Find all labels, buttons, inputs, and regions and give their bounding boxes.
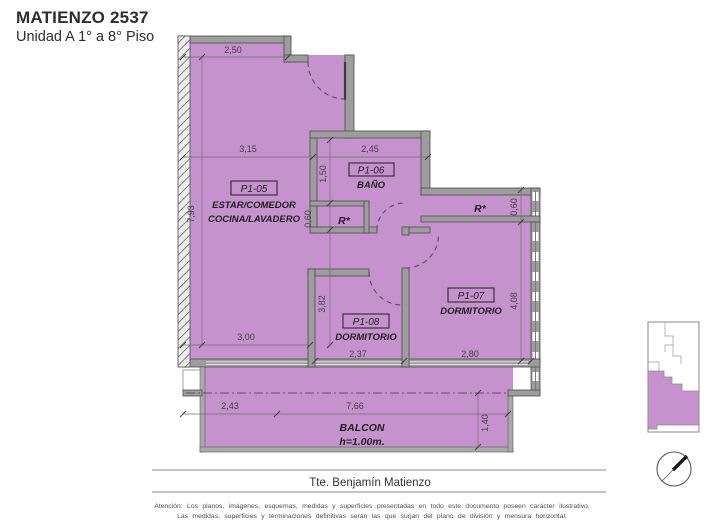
dim-bed1-closet-depth: 0,60 xyxy=(509,198,519,216)
wall-bath-top xyxy=(310,131,430,138)
bed2-name: DORMITORIO xyxy=(335,332,397,343)
dim-bath-depth: 1,50 xyxy=(318,165,328,183)
balcony-wall-left xyxy=(200,367,205,452)
dim-living-width: 3,15 xyxy=(239,144,257,154)
wall-bath-closet-right xyxy=(364,201,369,233)
bath-code: P1-06 xyxy=(358,166,385,177)
balcony-height-note: h=1.00m. xyxy=(339,436,384,448)
wall-bed2-left xyxy=(308,269,315,367)
wall-bath-right xyxy=(421,131,430,195)
wall-bed1-bed2 xyxy=(402,268,409,367)
wall-bath-closet-top xyxy=(310,201,369,206)
wall-left-party xyxy=(178,36,190,367)
disclaimer-line-2: Las medidas, superficies y terminaciones… xyxy=(177,513,567,520)
dim-living-bottom-width: 3,00 xyxy=(237,332,255,342)
dim-balcony-width: 7,66 xyxy=(346,401,364,411)
balcony-wall-right xyxy=(508,393,513,452)
dim-bed1-height: 4,08 xyxy=(509,292,519,310)
dim-bath-width: 2,45 xyxy=(361,144,379,154)
living-name-2: COCINA/LAVADERO xyxy=(208,214,301,225)
wall-bed2-top xyxy=(308,269,369,276)
key-plan xyxy=(648,322,699,432)
wall-hall-stub xyxy=(402,227,409,235)
wall-top xyxy=(178,36,291,43)
dim-top-width: 2,50 xyxy=(224,45,242,55)
bed1-name: DORMITORIO xyxy=(440,306,502,317)
living-code: P1-05 xyxy=(241,184,268,195)
street-name: Tte. Benjamín Matienzo xyxy=(309,477,430,489)
bed1-code: P1-07 xyxy=(458,291,485,302)
dim-bed2-width: 2,37 xyxy=(349,349,367,359)
disclaimer-line-1: Atención: Los planos, imágenes, esquemas… xyxy=(154,503,589,510)
dim-balcony-depth: 1,40 xyxy=(480,414,490,432)
balcony-label: BALCON xyxy=(340,422,385,434)
bed2-code: P1-08 xyxy=(353,317,380,328)
floor-plan-drawing: 2,50 3,15 2,45 7,93 1,50 0,60 3,82 3,00 … xyxy=(0,0,720,532)
dim-bed2-height: 3,82 xyxy=(317,295,327,313)
wall-entry-side xyxy=(345,55,354,138)
bed1-closet-label: R* xyxy=(474,203,487,215)
dim-left-height: 7,93 xyxy=(186,205,196,223)
compass xyxy=(657,452,691,486)
bath-closet-label: R* xyxy=(338,215,351,227)
dim-bed1-width: 2,80 xyxy=(461,349,479,359)
wall-bottom xyxy=(183,359,540,367)
dim-balcony-left: 2,43 xyxy=(221,401,239,411)
wall-entry-left xyxy=(284,55,308,62)
left-notch xyxy=(183,370,200,391)
wall-right-return xyxy=(508,390,540,396)
bath-name: BAÑO xyxy=(357,180,386,191)
living-name-1: ESTAR/COMEDOR xyxy=(212,200,296,211)
dim-bath-closet-depth: 0,60 xyxy=(303,210,313,228)
